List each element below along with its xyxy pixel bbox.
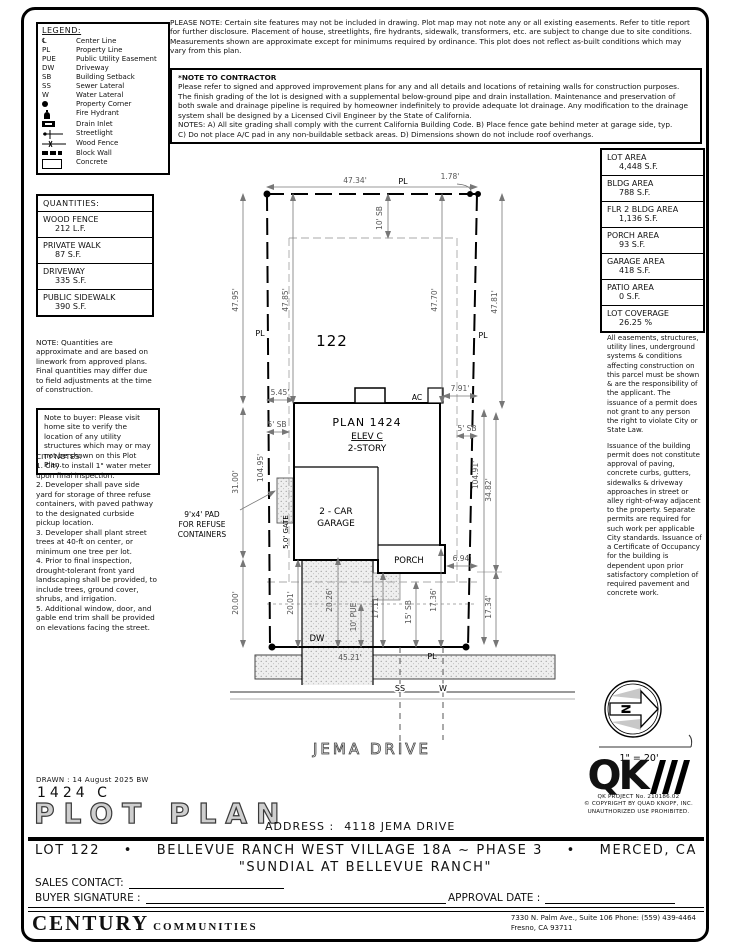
legend-item-center-line: ℄Center Line	[42, 38, 164, 46]
qk-logo-stripes-icon	[648, 760, 690, 794]
dim-rear-setback: 10' SB	[375, 206, 384, 230]
dim-right-inner: 47.70'	[430, 288, 439, 312]
legend-title: LEGEND:	[42, 27, 164, 36]
public-sidewalk	[255, 655, 555, 679]
dim-side-setback-left: 5' SB	[267, 420, 286, 429]
dim-driveway-depth: 20.26'	[325, 588, 334, 612]
qk-copyright: © COPYRIGHT BY QUAD KNOPF, INC.	[572, 801, 705, 808]
right-notes: All easements, structures, utility lines…	[607, 334, 702, 599]
dim-left-outer: 47.95'	[231, 288, 240, 312]
address: ADDRESS : 4118 JEMA DRIVE	[265, 820, 455, 833]
dim-side-setback-right: 5' SB	[457, 424, 476, 433]
legend-item-wood-fence: Wood Fence	[42, 140, 164, 148]
table-row: PRIVATE WALK87 S.F.	[38, 237, 152, 263]
permit-note: Issuance of the building permit does not…	[607, 442, 702, 599]
driveway-symbol: DW	[42, 65, 76, 73]
pl-label-bottom: PL	[427, 652, 437, 661]
legend-item-building-setback: SBBuilding Setback	[42, 74, 164, 82]
city-notes: CITY NOTES: 1. City to install 1" water …	[36, 452, 158, 632]
approval-date-label: APPROVAL DATE :	[448, 892, 540, 904]
legend-item-property-line: PLProperty Line	[42, 47, 164, 55]
contractor-note-title: *NOTE TO CONTRACTOR	[178, 73, 694, 82]
bullet: •	[124, 843, 133, 858]
bullet: •	[567, 843, 576, 858]
property-corner-dot	[463, 644, 470, 651]
legend-box: LEGEND: ℄Center Line PLProperty Line PUE…	[36, 22, 170, 175]
lot-number: 122	[316, 332, 348, 350]
porch-label: PORCH	[394, 556, 424, 566]
approval-date-field[interactable]	[545, 892, 675, 904]
plan-name: PLAN 1424	[332, 416, 401, 429]
approval-date-row: APPROVAL DATE :	[448, 892, 675, 904]
table-row: DRIVEWAY335 S.F.	[38, 263, 152, 289]
legend-item-fire-hydrant: Fire Hydrant	[42, 110, 164, 119]
dim-porch-offset: 6.94'	[453, 554, 472, 563]
dim-front-porch: 17.11'	[371, 595, 380, 619]
property-corner-dot	[264, 191, 271, 198]
qk-logo: QK	[588, 758, 647, 794]
legend-item-streetlight: Streetlight	[42, 130, 164, 139]
legend-item-property-corner: Property Corner	[42, 101, 164, 109]
quantities-title: QUANTITIES:	[38, 196, 152, 211]
table-row: PUBLIC SIDEWALK390 S.F.	[38, 289, 152, 315]
fire-hydrant-icon	[42, 110, 52, 119]
dim-lot-depth-right: 104.91'	[471, 461, 480, 489]
dim-pue: 10' PUE	[349, 602, 358, 631]
qk-copyright-2: UNAUTHORIZED USE PROHIBITED.	[572, 809, 705, 816]
lot-label: LOT 122	[35, 843, 100, 858]
dim-left-inner: 47.85'	[281, 288, 290, 312]
drawn-by: DRAWN : 14 August 2025 BW	[36, 776, 149, 784]
legend-item-block-wall: Block Wall	[42, 150, 164, 158]
garage-label-2: GARAGE	[317, 519, 355, 529]
sales-contact-field[interactable]	[129, 877, 284, 889]
sales-contact-label: SALES CONTACT:	[35, 877, 124, 889]
streetlight-icon	[42, 130, 64, 139]
property-corner-dot	[269, 644, 276, 651]
easements-note: All easements, structures, utility lines…	[607, 334, 702, 436]
table-row: GARAGE AREA418 S.F.	[602, 253, 703, 279]
address-value: 4118 JEMA DRIVE	[344, 820, 455, 833]
setback-symbol: SB	[42, 74, 76, 82]
dim-front-setback: 15' SB	[404, 600, 413, 624]
refuse-pad-label: 9'x4' PAD	[184, 510, 220, 519]
legend-item-driveway: DWDriveway	[42, 65, 164, 73]
dim-right-outer: 47.81'	[490, 290, 499, 314]
dim-lot-depth-left: 104.95'	[256, 454, 265, 482]
ac-label: AC	[412, 393, 422, 402]
block-wall-icon	[42, 151, 62, 155]
table-row: WOOD FENCE212 L.F.	[38, 211, 152, 237]
contractor-note-body: Please refer to signed and approved impr…	[178, 82, 694, 139]
corner-leader	[457, 184, 471, 191]
dim-right-mid: 34.82'	[484, 478, 493, 502]
ac-pad	[428, 388, 443, 403]
note-to-contractor-box: *NOTE TO CONTRACTOR Please refer to sign…	[170, 68, 702, 144]
table-row: LOT AREA4,448 S.F.	[602, 150, 703, 175]
pl-label-top: PL	[398, 177, 408, 186]
sewer-lateral-label: SS	[395, 684, 405, 693]
plot-plan-sheet: LEGEND: ℄Center Line PLProperty Line PUE…	[0, 0, 731, 946]
dim-left-mid: 31.00'	[231, 470, 240, 494]
company-footer: CENTURYCOMMUNITIES 7330 N. Palm Ave., Su…	[32, 911, 700, 936]
property-corner-dot	[467, 191, 473, 197]
dim-front-left-outer: 20.00'	[231, 591, 240, 615]
plot-drawing: 47.34' 1.78' PL 10' SB 47.95' 47.85' 47.…	[160, 160, 600, 775]
company-address: 7330 N. Palm Ave., Suite 106 Phone: (559…	[511, 914, 700, 933]
table-row: BLDG AREA788 S.F.	[602, 175, 703, 201]
dim-corner-offset: 1.78'	[441, 172, 460, 181]
legend-item-drain-inlet: Drain Inlet	[42, 121, 164, 129]
dw-label: DW	[310, 634, 326, 644]
pl-label-left: PL	[255, 329, 265, 338]
property-corner-dot	[475, 191, 481, 197]
subdivision-name: "SUNDIAL AT BELLEVUE RANCH"	[0, 860, 731, 875]
dim-house-left-offset: 5.45'	[271, 388, 290, 397]
legend-item-water-lateral: WWater Lateral	[42, 92, 164, 100]
garage-label: 2 - CAR	[319, 507, 352, 517]
please-note-text: PLEASE NOTE: Certain site features may n…	[170, 18, 698, 56]
concrete-icon	[42, 159, 62, 169]
pue-symbol: PUE	[42, 56, 76, 64]
drain-inlet-icon	[42, 121, 55, 127]
dim-ac-offset: 7.91'	[451, 384, 470, 393]
quantities-note: NOTE: Quantities are approximate and are…	[36, 338, 156, 395]
dim-front-width: 45.21'	[338, 653, 362, 662]
plan-elev: ELEV C	[351, 432, 383, 442]
buyer-signature-label: BUYER SIGNATURE :	[35, 892, 141, 904]
legend-item-concrete: Concrete	[42, 159, 164, 169]
sewer-symbol: SS	[42, 83, 76, 91]
refuse-pad-label-2: FOR REFUSE	[178, 520, 225, 529]
company-logo: CENTURYCOMMUNITIES	[32, 911, 258, 936]
legend-item-sewer-lateral: SSSewer Lateral	[42, 83, 164, 91]
north-label: N	[619, 704, 633, 714]
refuse-pad-label-3: CONTAINERS	[178, 530, 227, 539]
community-name: BELLEVUE RANCH WEST VILLAGE 18A ~ PHASE …	[157, 843, 543, 858]
buyer-signature-field[interactable]	[146, 892, 446, 904]
pl-label-right: PL	[478, 331, 488, 340]
company-name: CENTURY	[32, 911, 149, 935]
table-row: FLR 2 BLDG AREA1,136 S.F.	[602, 201, 703, 227]
page-title: PLOT PLAN	[34, 797, 288, 830]
center-line-symbol: ℄	[42, 38, 76, 46]
water-lateral-label: W	[439, 684, 447, 693]
street-name: JEMA DRIVE	[312, 740, 431, 758]
table-row: PATIO AREA0 S.F.	[602, 279, 703, 305]
legend-item-pue: PUEPublic Utility Easement	[42, 56, 164, 64]
city-label: MERCED, CA	[600, 843, 697, 858]
dim-front-right: 17.34'	[484, 595, 493, 619]
quantities-table: QUANTITIES: WOOD FENCE212 L.F. PRIVATE W…	[36, 194, 154, 317]
table-row: PORCH AREA93 S.F.	[602, 227, 703, 253]
qk-logo-block: QK QK PROJECT No. 210186.02 © COPYRIGHT …	[572, 758, 705, 816]
sales-contact-row: SALES CONTACT:	[35, 877, 284, 889]
title-divider	[28, 837, 704, 841]
property-corner-dot-icon	[42, 101, 48, 107]
dim-top-width: 47.34'	[343, 176, 367, 185]
plan-story: 2-STORY	[348, 444, 387, 454]
dim-front-garage: 20.01'	[286, 591, 295, 615]
area-table: LOT AREA4,448 S.F. BLDG AREA788 S.F. FLR…	[600, 148, 705, 333]
water-symbol: W	[42, 92, 76, 100]
property-line-symbol: PL	[42, 47, 76, 55]
right-property-line	[468, 194, 477, 647]
gate-label: 5.0' GATE	[282, 515, 290, 549]
company-name-2: COMMUNITIES	[153, 921, 258, 933]
dim-front-house: 17.36'	[429, 588, 438, 612]
table-row: LOT COVERAGE26.25 %	[602, 305, 703, 331]
lot-info-row: LOT 122 • BELLEVUE RANCH WEST VILLAGE 18…	[35, 843, 697, 858]
address-label: ADDRESS :	[265, 820, 334, 833]
wood-fence-icon	[42, 140, 66, 147]
driveway-slab	[302, 558, 373, 685]
rear-bump-out	[355, 388, 385, 403]
buyer-signature-row: BUYER SIGNATURE :	[35, 892, 446, 904]
